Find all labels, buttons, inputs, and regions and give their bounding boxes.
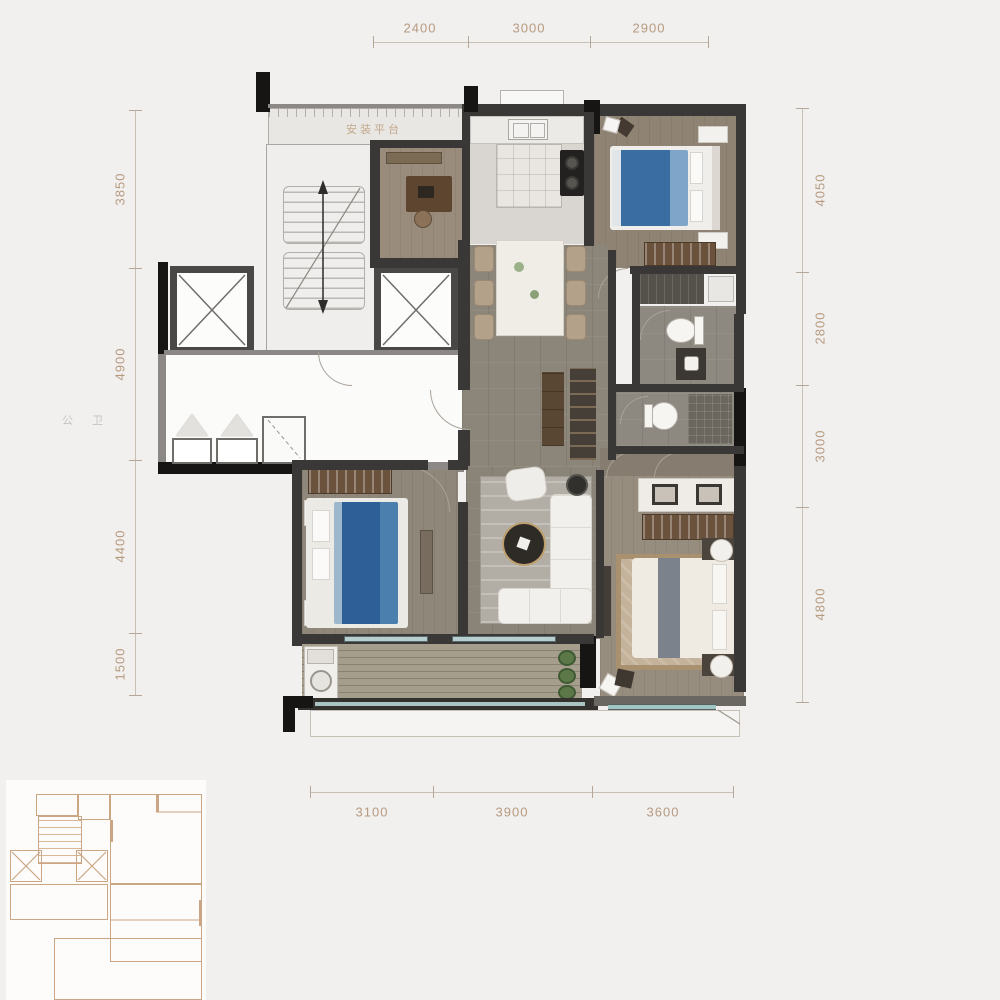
master-pillow-2 — [712, 610, 727, 650]
dining-chair — [474, 280, 494, 306]
dining-chair — [474, 314, 494, 340]
wall-bedroom3-living — [458, 502, 468, 642]
wall-east-bath2 — [734, 388, 746, 466]
master-lamp-1 — [710, 539, 733, 562]
stairwell — [266, 144, 378, 356]
floor-lamp — [566, 474, 588, 496]
toilet1-tank — [694, 316, 704, 345]
utility-shaft-1 — [172, 438, 212, 464]
wall-bedroom3-north-b — [448, 460, 468, 470]
master-bed-runner — [658, 558, 680, 658]
bedroom3-wardrobe — [308, 468, 392, 494]
bedroom2-pillow-1 — [690, 152, 703, 184]
inset-corridor — [10, 884, 108, 920]
bedroom2-pillow-2 — [690, 190, 703, 222]
dresser-mirror-2 — [696, 484, 722, 505]
corridor-left-wall — [158, 354, 166, 472]
platform-top-wall — [268, 104, 480, 108]
toilet2-bowl — [650, 402, 678, 430]
sofa-seats — [498, 588, 592, 624]
corridor-top-wall — [164, 350, 462, 355]
elevator-left — [170, 266, 254, 354]
wall-bedroom2-south — [630, 266, 744, 274]
balcony-floor — [302, 644, 582, 700]
corridor-storage — [262, 416, 306, 464]
bedroom3-pillow-1 — [312, 510, 330, 542]
toilet1-bowl — [666, 318, 696, 343]
study-laptop — [418, 186, 434, 198]
wall-study-south — [370, 258, 466, 268]
wall-bath-divider — [616, 384, 744, 392]
floorplan-page: { "title": "residential-unit-floor-plan"… — [0, 0, 1000, 1000]
dining-chair — [474, 246, 494, 272]
shaft-door-swing-1 — [176, 414, 208, 436]
inset-wall-tick-2 — [156, 794, 159, 812]
inset-wall-tick-1 — [110, 820, 113, 842]
kitchen-marble-tile — [496, 144, 562, 208]
bedroom2-nightstand-1 — [698, 126, 728, 143]
dining-table-decor2 — [530, 290, 539, 299]
dining-chair — [566, 246, 586, 272]
inset-wall-tick-3 — [199, 900, 202, 926]
wall-living-master — [596, 470, 604, 638]
living-armchair — [504, 465, 548, 502]
washing-machine — [310, 670, 332, 692]
wall-corner-bottom-left-v — [283, 696, 295, 732]
plant-1 — [558, 650, 576, 666]
study-chair — [414, 210, 432, 228]
kitchen-sink-basin — [513, 123, 529, 138]
wall-kitchen-bedroom2 — [584, 112, 594, 246]
inset-elevator-left — [10, 850, 42, 882]
inset-room-block-2 — [78, 794, 110, 820]
stairs-lower-flight — [283, 252, 365, 310]
hall-cabinet-1 — [542, 372, 564, 446]
stove-burner-1 — [565, 156, 579, 170]
wall-bedroom3-west — [292, 460, 302, 646]
wall-core-left — [158, 262, 168, 356]
wall-entry-upper — [458, 240, 470, 390]
plant-2 — [558, 668, 576, 684]
wall-study-north — [378, 140, 466, 148]
bedroom3-bench — [420, 530, 433, 594]
hall-cabinet-2 — [570, 368, 596, 460]
wall-bath-west — [632, 272, 640, 390]
balcony-window-glass — [315, 702, 585, 706]
master-floor-pillow-dark — [614, 668, 634, 688]
wall-stub-kitchen-left — [464, 86, 478, 112]
wall-east-upper — [736, 104, 746, 314]
master-lamp-2 — [710, 655, 733, 678]
master-pillow-1 — [712, 564, 727, 604]
dining-table-decor — [514, 262, 524, 272]
wall-east-mid — [734, 314, 744, 390]
bath2-shower-tile — [688, 394, 732, 444]
bedroom3-pillow-2 — [312, 548, 330, 580]
elevator-right — [374, 266, 458, 354]
platform-hatch — [269, 109, 479, 117]
bedroom2-wardrobe — [644, 242, 716, 266]
stairs-upper-flight — [283, 186, 365, 244]
study-shelf — [386, 152, 442, 164]
wall-kitchen-west — [462, 112, 470, 244]
dresser-mirror-1 — [652, 484, 678, 505]
dining-chair — [566, 314, 586, 340]
wall-bath2-south — [616, 446, 744, 454]
utility-shaft-2 — [216, 438, 258, 464]
bedroom2-headboard — [712, 146, 720, 230]
bedroom2-duvet-blue — [612, 150, 688, 226]
dining-table — [496, 240, 564, 336]
inset-elevator-right — [76, 850, 108, 882]
wall-hall-east — [608, 250, 616, 460]
shaft-door-swing-2 — [221, 414, 253, 436]
shower-bench — [708, 276, 734, 302]
master-wardrobe — [642, 514, 734, 540]
wall-study-west — [370, 140, 380, 268]
key-plan-inset — [6, 780, 206, 1000]
glass-door-bedroom3 — [344, 636, 428, 642]
bath1-basin — [684, 356, 699, 371]
wall-north-main — [462, 104, 746, 116]
laundry-cabinet — [307, 649, 334, 664]
glass-door-living — [452, 636, 556, 642]
inset-room-block-1 — [36, 794, 78, 816]
master-window-glass — [608, 704, 716, 710]
lower-eave-outline — [310, 710, 740, 737]
platform-label: 安装平台 — [346, 121, 402, 137]
shower-room — [640, 274, 704, 304]
stove-burner-2 — [565, 176, 579, 190]
wall-east-master — [734, 466, 746, 692]
dining-chair — [566, 280, 586, 306]
wall-bedroom3-north-a — [298, 460, 428, 470]
bedroom3-duvet-blue — [334, 502, 398, 624]
inset-lower-wing — [54, 938, 202, 1000]
kitchen-sink-basin2 — [530, 123, 545, 138]
